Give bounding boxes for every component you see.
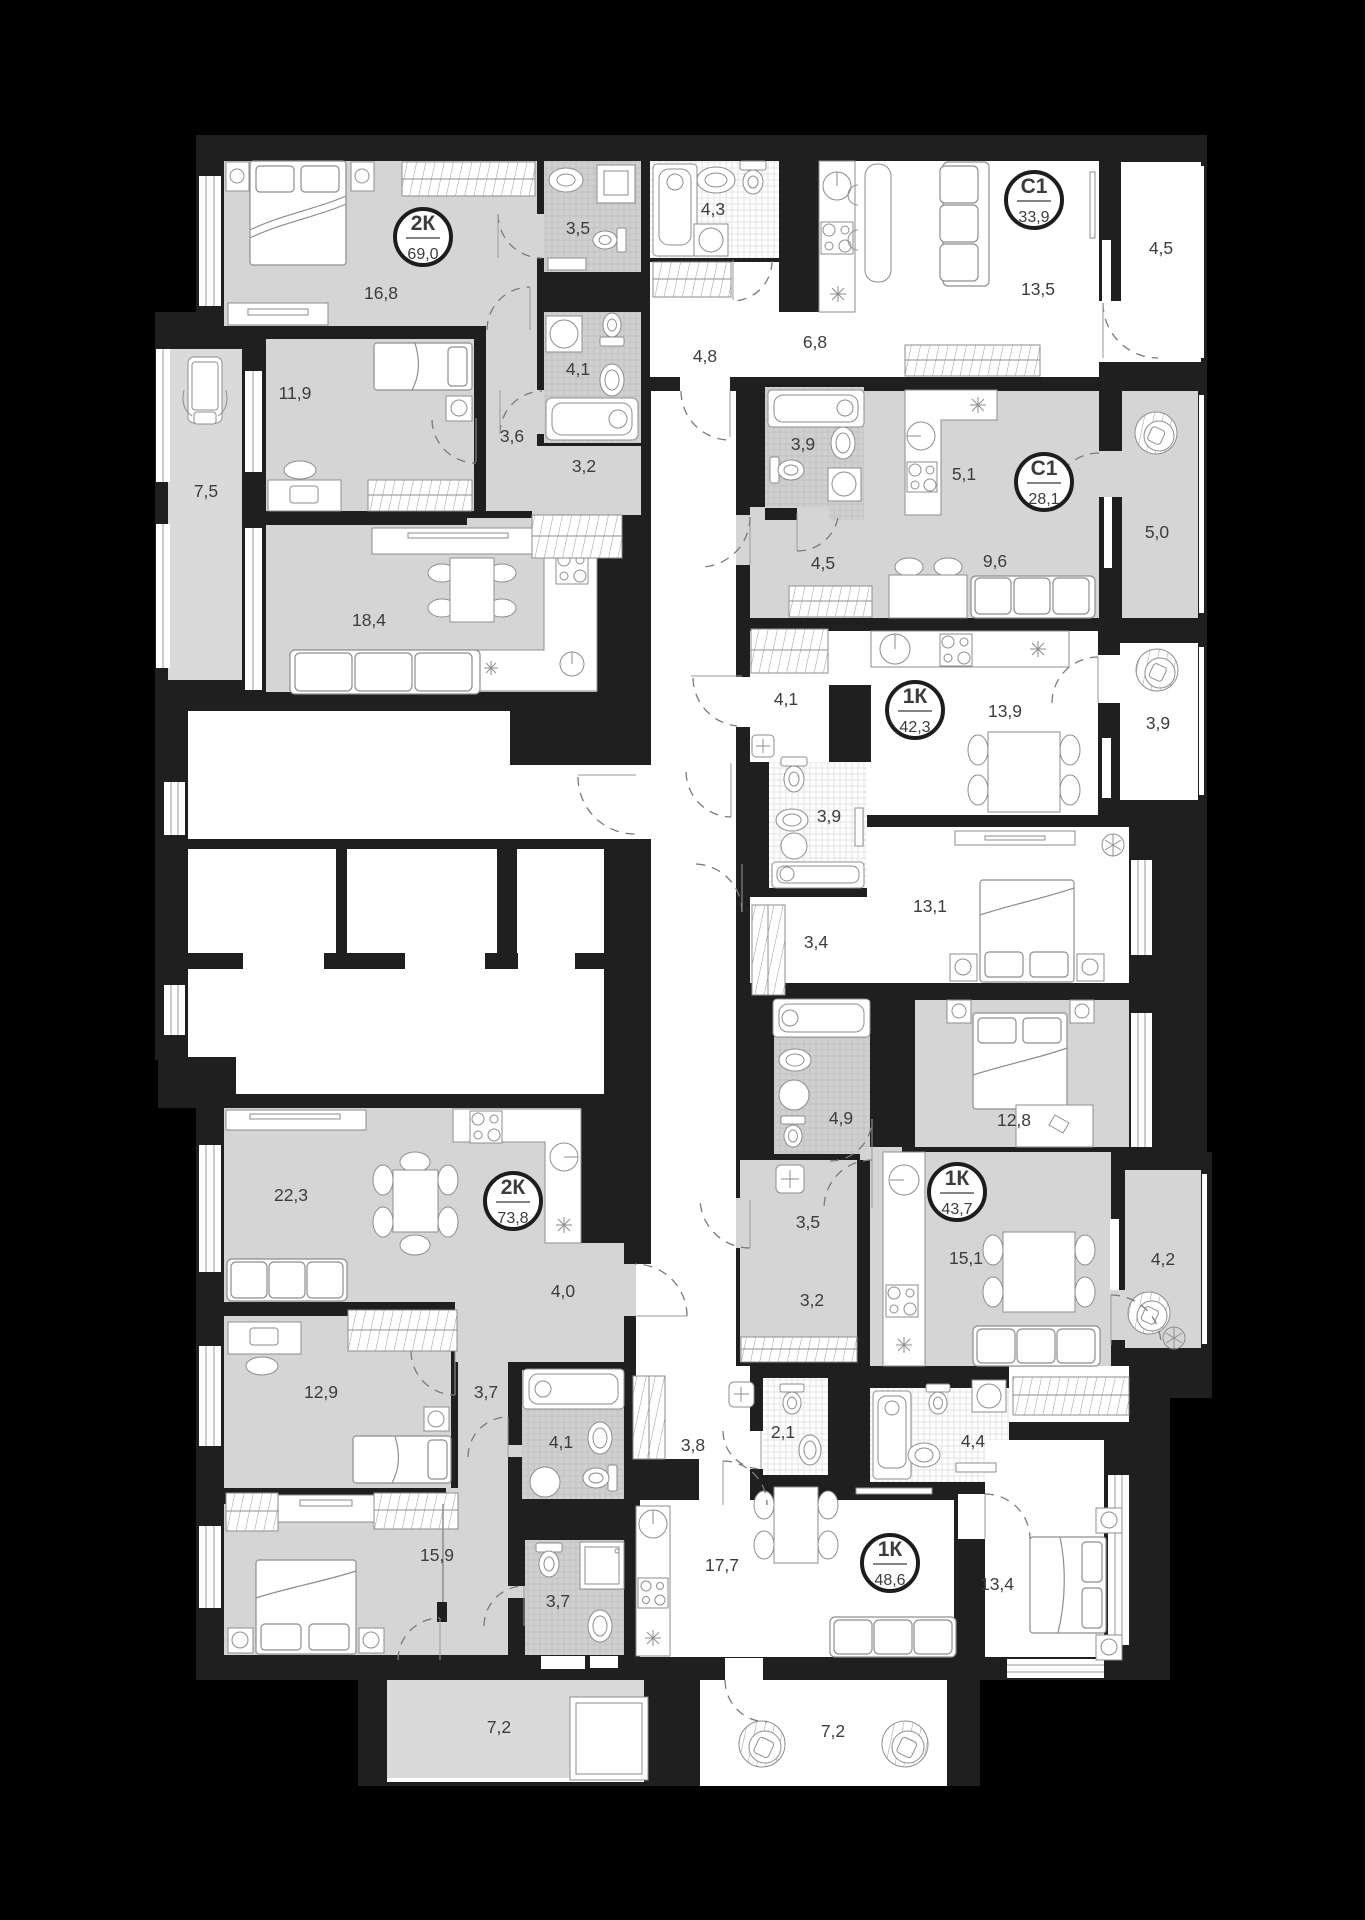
svg-text:3,4: 3,4 [804,932,829,952]
svg-text:22,3: 22,3 [274,1185,308,1205]
svg-text:73,8: 73,8 [497,1210,528,1227]
svg-text:42,3: 42,3 [899,719,930,736]
svg-text:4,3: 4,3 [701,199,725,219]
svg-text:15,1: 15,1 [949,1248,983,1268]
svg-text:33,9: 33,9 [1018,209,1049,226]
svg-text:4,9: 4,9 [829,1108,853,1128]
svg-text:4,5: 4,5 [1149,238,1173,258]
svg-text:2К: 2К [411,212,436,235]
svg-text:5,0: 5,0 [1145,522,1170,542]
svg-text:3,7: 3,7 [546,1591,570,1611]
svg-text:3,9: 3,9 [791,434,815,454]
svg-text:3,5: 3,5 [796,1212,820,1232]
svg-text:16,8: 16,8 [364,283,398,303]
svg-text:2К: 2К [501,1176,526,1199]
svg-text:4,1: 4,1 [774,689,798,709]
svg-text:18,4: 18,4 [352,610,386,630]
svg-text:1К: 1К [878,1538,903,1561]
svg-text:1К: 1К [903,685,928,708]
svg-text:13,1: 13,1 [913,896,947,916]
svg-text:4,0: 4,0 [551,1281,576,1301]
svg-text:4,4: 4,4 [961,1431,986,1451]
svg-text:28,1: 28,1 [1028,491,1059,508]
svg-text:4,5: 4,5 [811,553,835,573]
svg-text:12,9: 12,9 [304,1382,338,1402]
svg-text:2,1: 2,1 [771,1422,795,1442]
svg-text:43,7: 43,7 [941,1201,972,1218]
svg-text:17,7: 17,7 [705,1555,739,1575]
svg-text:4,8: 4,8 [693,346,717,366]
svg-text:3,2: 3,2 [800,1290,824,1310]
svg-text:3,6: 3,6 [500,426,524,446]
svg-text:3,5: 3,5 [566,218,590,238]
svg-text:9,6: 9,6 [983,551,1007,571]
svg-text:4,2: 4,2 [1151,1249,1175,1269]
svg-text:5,1: 5,1 [952,464,976,484]
svg-text:1К: 1К [945,1167,970,1190]
svg-text:15,9: 15,9 [420,1545,454,1565]
svg-text:13,5: 13,5 [1021,279,1055,299]
svg-text:3,2: 3,2 [572,456,596,476]
svg-text:11,9: 11,9 [279,383,312,403]
svg-text:48,6: 48,6 [874,1572,905,1589]
svg-text:3,9: 3,9 [817,806,841,826]
svg-text:13,9: 13,9 [988,701,1022,721]
svg-text:69,0: 69,0 [407,246,438,263]
svg-text:3,9: 3,9 [1146,713,1170,733]
svg-text:С1: С1 [1031,457,1058,480]
svg-text:4,1: 4,1 [549,1432,573,1452]
svg-text:7,2: 7,2 [487,1717,511,1737]
svg-text:С1: С1 [1021,175,1048,198]
svg-text:3,8: 3,8 [681,1435,705,1455]
svg-text:12,8: 12,8 [997,1110,1031,1130]
svg-text:7,2: 7,2 [821,1721,845,1741]
svg-text:13,4: 13,4 [980,1574,1014,1594]
svg-text:4,1: 4,1 [566,359,590,379]
svg-text:7,5: 7,5 [194,481,218,501]
svg-text:6,8: 6,8 [803,332,827,352]
svg-text:3,7: 3,7 [474,1382,498,1402]
